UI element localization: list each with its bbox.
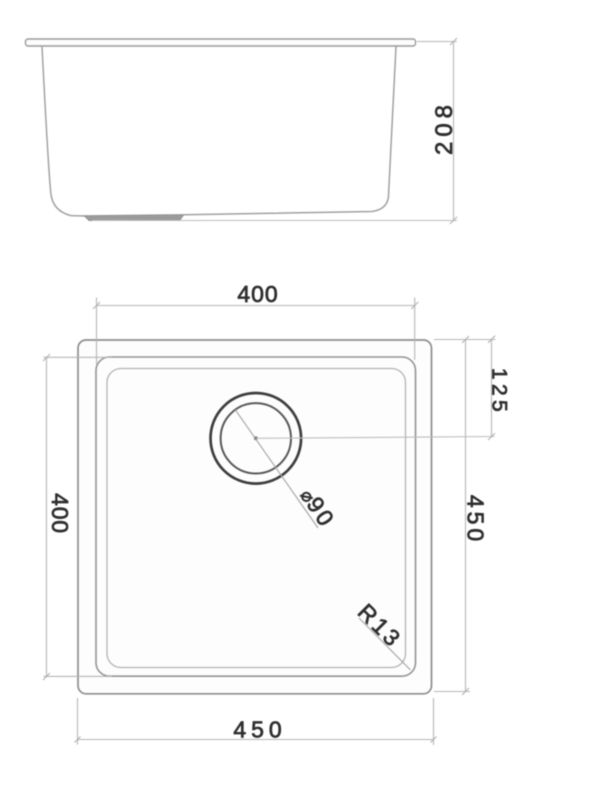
svg-text:400: 400 — [47, 493, 73, 534]
svg-text:450: 450 — [233, 717, 286, 743]
svg-text:125: 125 — [488, 368, 511, 416]
svg-text:208: 208 — [431, 100, 458, 155]
svg-text:450: 450 — [463, 495, 489, 545]
svg-text:400: 400 — [237, 281, 278, 307]
